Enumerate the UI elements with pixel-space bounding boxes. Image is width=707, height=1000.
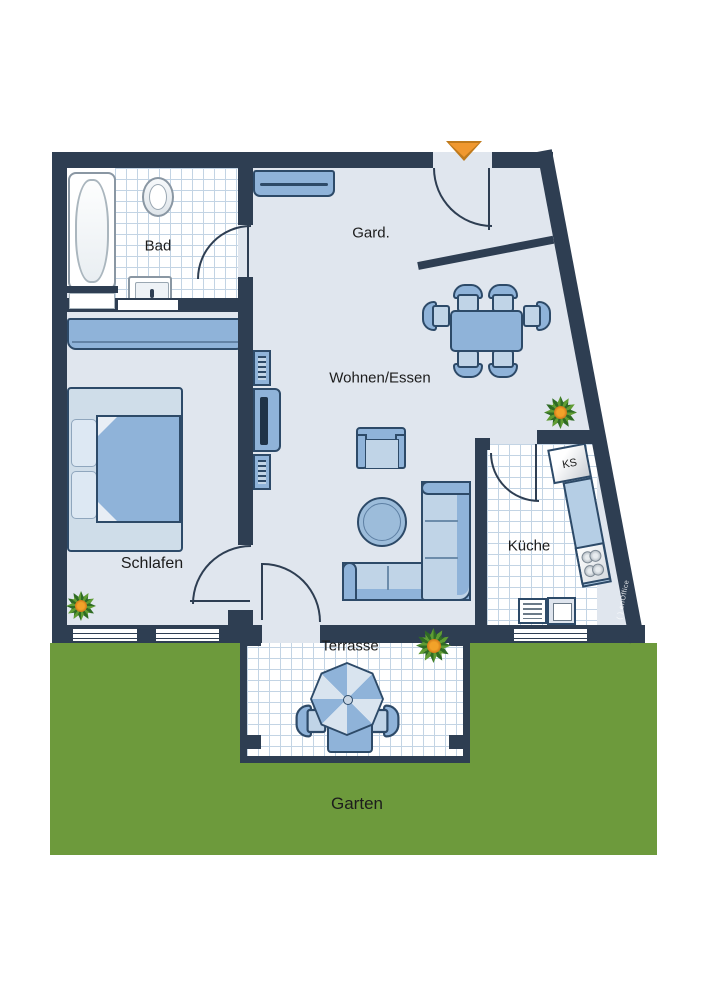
room-label-terrasse: Terrasse: [321, 638, 379, 655]
pillow-icon: [71, 419, 97, 467]
dining-table-icon: [450, 310, 523, 352]
toilet-icon: [142, 177, 174, 217]
window-icon: [155, 628, 220, 642]
bed-blanket: [96, 415, 181, 523]
fridge-label: KS: [561, 456, 578, 471]
wall-kitchen-top: [537, 430, 593, 444]
bath-niche: [69, 293, 115, 309]
wall-top-left: [52, 152, 433, 168]
armchair-icon: [356, 427, 406, 469]
bath-door-leaf: [247, 225, 249, 277]
kitchen-door-leaf: [535, 444, 537, 500]
sink-counter: [117, 299, 179, 311]
fridge-icon: KS: [547, 443, 592, 485]
wall-bedroom-right: [238, 312, 253, 545]
kitchen-sink-icon: [547, 597, 576, 625]
window-icon: [513, 628, 588, 642]
entrance-door-leaf: [488, 168, 490, 230]
terrace-corner-block: [449, 735, 463, 749]
window-icon: [72, 628, 138, 642]
wall-tub-divider: [64, 286, 118, 293]
bedroom-door-leaf: [190, 600, 250, 602]
room-label-kueche: Küche: [508, 538, 551, 555]
dining-chair-icon: [422, 300, 452, 332]
pillow-icon: [71, 471, 97, 519]
dining-chair-icon: [521, 300, 551, 332]
blanket-fold: [98, 502, 117, 521]
terrace-door-leaf: [261, 563, 263, 620]
plant-icon: [66, 591, 96, 621]
speaker-icon: [253, 350, 271, 386]
plant-icon: [416, 628, 451, 663]
blanket-fold: [98, 417, 117, 436]
speaker-icon: [253, 454, 271, 490]
dining-chair-icon: [487, 348, 519, 378]
parasol-icon: [310, 662, 384, 736]
gard-wardrobe-icon: [253, 170, 335, 197]
floor-plan: KS: [0, 0, 707, 1000]
wall-left: [52, 152, 67, 643]
room-label-wohnen-essen: Wohnen/Essen: [329, 370, 430, 387]
terrace-corner-block: [247, 735, 261, 749]
room-label-schlafen: Schlafen: [121, 555, 183, 573]
tv-sideboard-icon: [253, 388, 281, 452]
tv-icon: [260, 397, 268, 445]
wall-kitchen-stub: [475, 438, 490, 450]
room-label-gard: Gard.: [352, 225, 390, 242]
room-label-garten: Garten: [331, 794, 383, 814]
bedroom-wardrobe-icon: [67, 318, 245, 350]
wall-bath-right-upper: [238, 168, 253, 225]
plant-icon: [544, 396, 577, 429]
room-label-bad: Bad: [145, 238, 172, 255]
wardrobe-rod: [260, 183, 328, 186]
sofa-icon: [342, 481, 471, 601]
wall-kitchen-left: [475, 445, 487, 625]
bathtub-icon: [68, 172, 116, 290]
dishwasher-icon: [518, 598, 547, 624]
bed-icon: [67, 387, 183, 552]
wall-bedroom-door-chunk: [228, 610, 253, 630]
dining-chair-icon: [452, 348, 484, 378]
